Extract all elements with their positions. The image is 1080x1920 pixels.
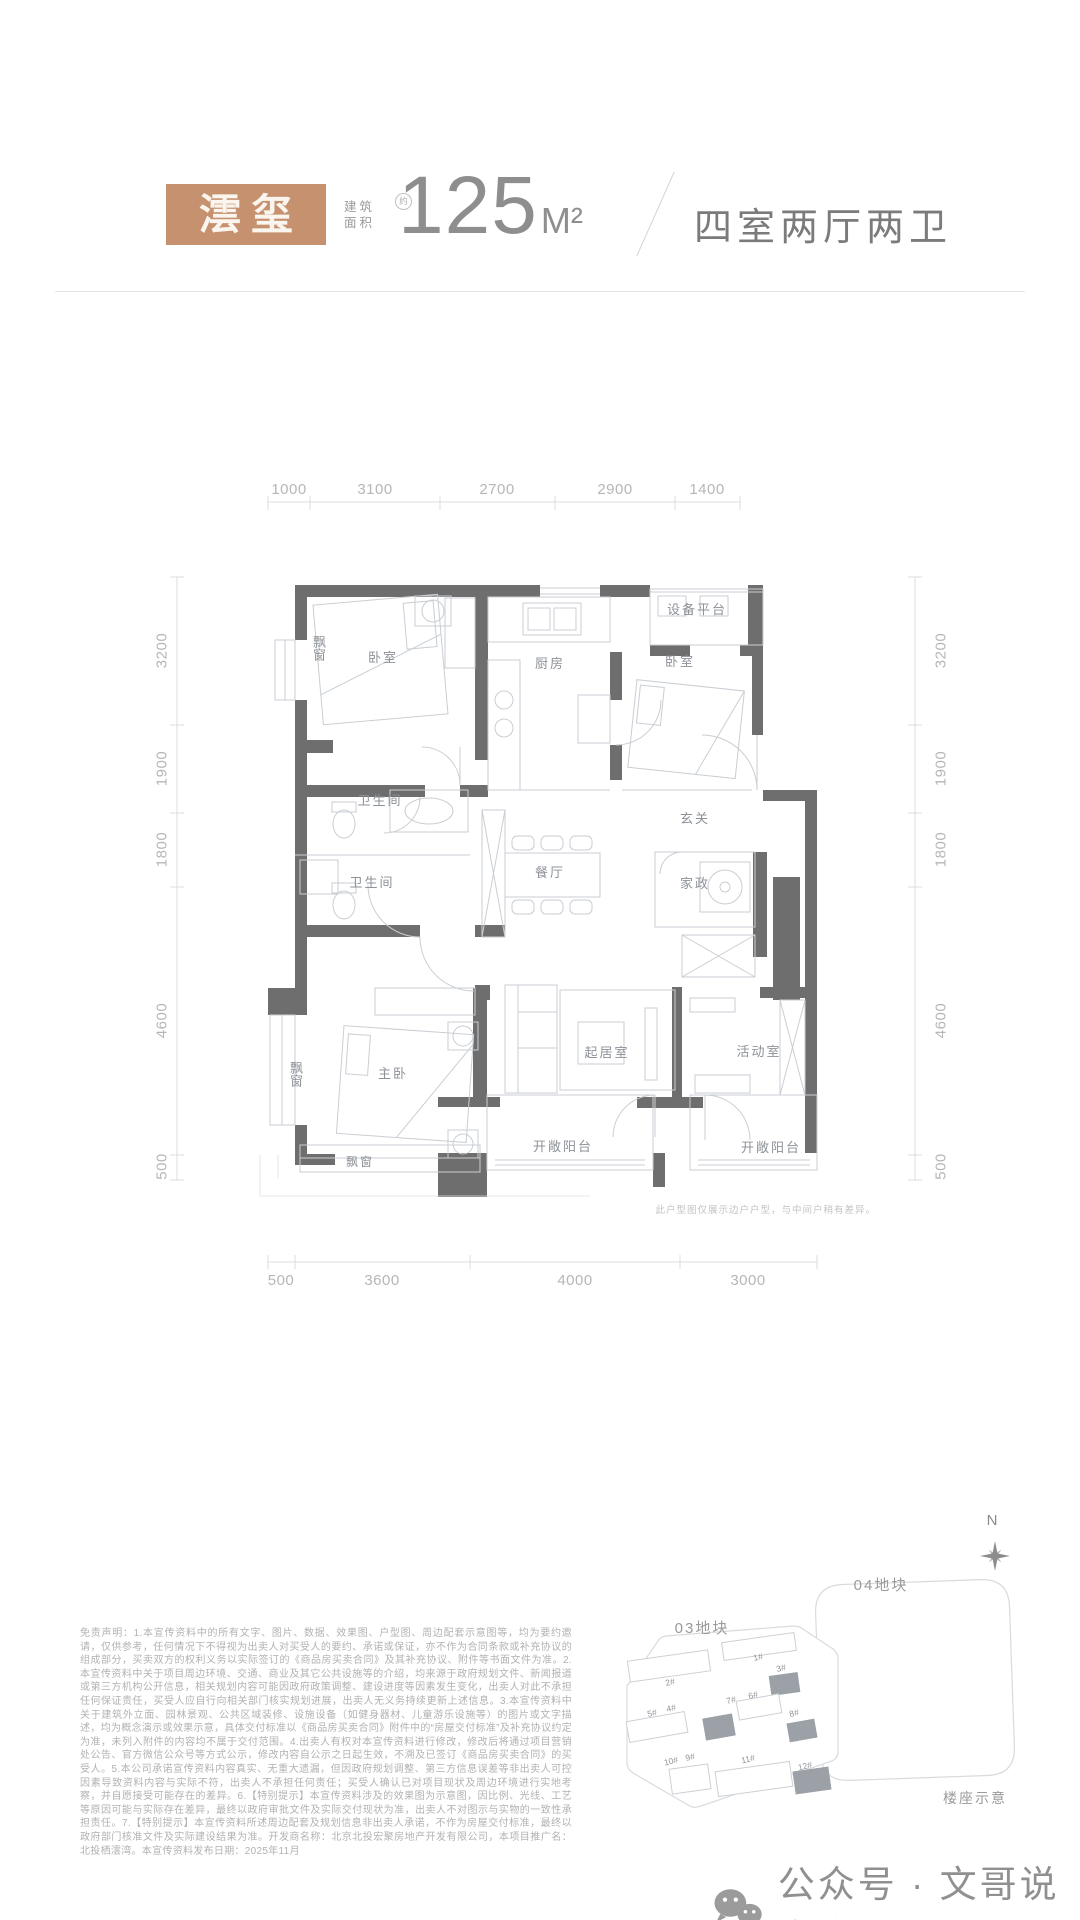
dimension-label: 1800: [154, 820, 171, 880]
room-label-balcony: 开敞阳台: [513, 1136, 613, 1155]
room-label-bay-window: 飘窗: [285, 1048, 305, 1100]
room-label-master-bedroom: 主卧: [353, 1063, 433, 1082]
dimension-label: 3600: [347, 1272, 417, 1289]
dimension-label: 1400: [672, 481, 742, 498]
dimension-label: 4600: [933, 991, 950, 1051]
plot-03-label: 03地块: [652, 1617, 752, 1638]
room-label-bay-window: 飘窗: [320, 1153, 400, 1170]
dimension-label: 1000: [254, 481, 324, 498]
dimension-label: 500: [246, 1272, 316, 1289]
room-label-housekeeping: 家政: [655, 873, 735, 892]
room-label-bay-window: 飘窗: [308, 622, 328, 674]
compass-north-label: N: [978, 1512, 1008, 1529]
room-label-bedroom: 卧室: [640, 651, 720, 670]
room-label-bathroom: 卫生间: [332, 872, 412, 891]
dimension-label: 4000: [540, 1272, 610, 1289]
dimension-label: 3100: [340, 481, 410, 498]
disclaimer-text: 免责声明：1.本宣传资料中的所有文字、图片、数据、效果图、户型图、周边配套示意图…: [80, 1627, 572, 1858]
dimension-label: 3200: [154, 621, 171, 681]
room-label-foyer: 玄关: [655, 808, 735, 827]
room-label-balcony: 开敞阳台: [721, 1137, 821, 1156]
dimension-label: 2700: [462, 481, 532, 498]
room-label-equipment-platform: 设备平台: [647, 599, 747, 618]
room-label-kitchen: 厨房: [510, 653, 590, 672]
footer-account-name: 公众号 · 文哥说京房: [778, 1854, 1080, 1920]
floorplan-note: 此户型图仅展示边户户型，与中间户稍有差异。: [620, 1202, 876, 1216]
wechat-icon: [712, 1883, 764, 1920]
room-label-bedroom: 卧室: [343, 647, 423, 666]
dimension-label: 1800: [933, 820, 950, 880]
dimension-label: 3000: [713, 1272, 783, 1289]
plot-04-label: 04地块: [831, 1574, 931, 1595]
dimension-label: 4600: [154, 991, 171, 1051]
dimension-label: 2900: [580, 481, 650, 498]
footer: 公众号 · 文哥说京房: [712, 1854, 1080, 1920]
dimension-label: 3200: [933, 621, 950, 681]
poster-page: 澐玺 建筑 面积 约 125 M² 四室两厅两卫: [0, 0, 1080, 1920]
room-label-bathroom: 卫生间: [340, 790, 420, 809]
dimension-label: 1900: [933, 739, 950, 799]
room-label-dining: 餐厅: [510, 862, 590, 881]
dimension-label: 1900: [154, 739, 171, 799]
compass-icon: [980, 1541, 1010, 1571]
dimension-label: 500: [933, 1137, 950, 1197]
building-shape-highlighted: [769, 1672, 801, 1696]
room-label-living: 起居室: [557, 1042, 657, 1061]
room-label-activity: 活动室: [709, 1041, 809, 1060]
dimension-label: 500: [154, 1137, 171, 1197]
building-shape: [668, 1763, 711, 1794]
site-plan-caption: 楼座示意: [915, 1788, 1035, 1808]
